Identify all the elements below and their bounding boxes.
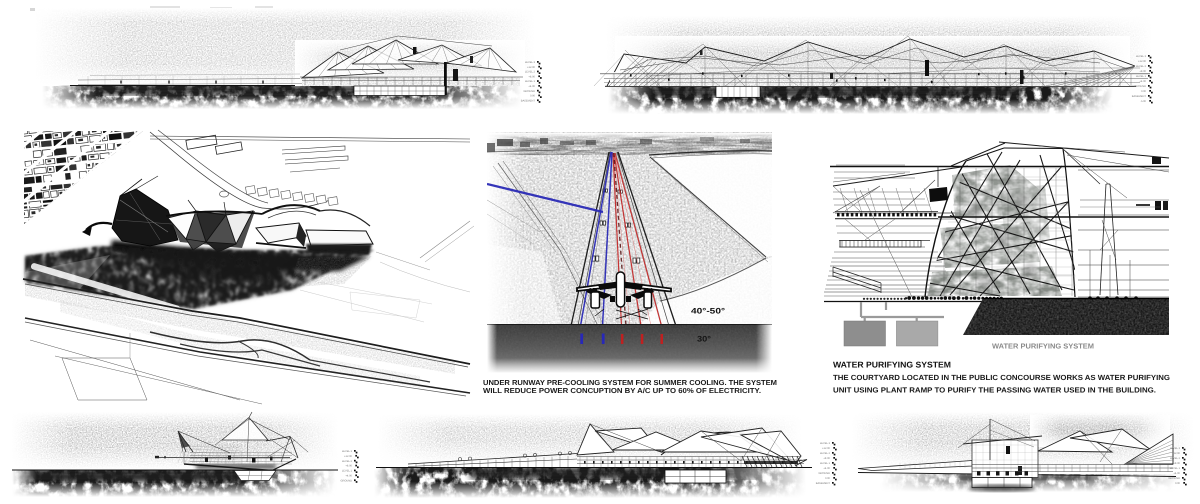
svg-text:THE COURTYARD LOCATED IN THE P: THE COURTYARD LOCATED IN THE PUBLIC CONC…	[833, 373, 1170, 382]
svg-text:UNIT USING PLANT RAMP TO PURI: UNIT USING PLANT RAMP TO PURIFY THE PASS…	[833, 386, 1156, 395]
svg-text:+4.00: +4.00	[528, 85, 535, 88]
svg-text:BASEMENT: BASEMENT	[1132, 95, 1147, 98]
svg-text:LEVEL 1: LEVEL 1	[1170, 467, 1181, 470]
svg-text:LEVEL 1: LEVEL 1	[820, 462, 831, 465]
svg-text:+12.00: +12.00	[527, 66, 536, 69]
svg-text:BASEMENT: BASEMENT	[816, 482, 831, 485]
svg-text:LEVEL 2: LEVEL 2	[342, 460, 353, 463]
svg-text:LEVEL 3: LEVEL 3	[820, 442, 831, 445]
svg-text:40°-50°: 40°-50°	[691, 307, 725, 316]
svg-text:LEVEL 2: LEVEL 2	[820, 452, 831, 455]
svg-text:30°: 30°	[697, 335, 711, 344]
svg-text:+4.00: +4.00	[345, 475, 352, 478]
svg-text:LEVEL 1: LEVEL 1	[1136, 75, 1147, 78]
svg-text:+4.00: +4.00	[1139, 80, 1146, 83]
svg-text:+12.00: +12.00	[1172, 452, 1181, 455]
svg-text:GROUND: GROUND	[340, 479, 352, 482]
svg-text:LEVEL 3: LEVEL 3	[342, 450, 353, 453]
svg-text:LEVEL 3: LEVEL 3	[1170, 447, 1181, 450]
svg-text:BASEMENT: BASEMENT	[521, 99, 536, 102]
svg-text:WILL REDUCE POWER CONCUPTION B: WILL REDUCE POWER CONCUPTION BY A/C UP T…	[483, 386, 761, 395]
svg-text:+12.00: +12.00	[822, 447, 831, 450]
svg-text:LEVEL 2: LEVEL 2	[1136, 65, 1147, 68]
svg-text:LEVEL 3: LEVEL 3	[1136, 55, 1147, 58]
svg-text:+4.00: +4.00	[1173, 472, 1180, 475]
svg-text:LEVEL 1: LEVEL 1	[525, 80, 536, 83]
svg-text:LEVEL 3: LEVEL 3	[525, 61, 536, 64]
svg-text:WATER PURIFYING SYSTEM: WATER PURIFYING SYSTEM	[833, 359, 951, 369]
svg-text:LEVEL 1: LEVEL 1	[342, 470, 353, 473]
svg-text:+8.00: +8.00	[1139, 70, 1146, 73]
svg-text:GROUND: GROUND	[1134, 85, 1146, 88]
svg-text:+8.00: +8.00	[345, 465, 352, 468]
svg-text:0.00: 0.00	[530, 95, 536, 98]
svg-text:GROUND: GROUND	[1168, 477, 1180, 480]
svg-text:0.00: 0.00	[1175, 482, 1181, 485]
svg-text:+4.00: +4.00	[823, 467, 830, 470]
svg-text:+8.00: +8.00	[528, 75, 535, 78]
svg-text:+8.00: +8.00	[1173, 462, 1180, 465]
svg-text:LEVEL 2: LEVEL 2	[525, 71, 536, 74]
svg-text:+12.00: +12.00	[1138, 60, 1147, 63]
svg-text:GROUND: GROUND	[818, 472, 830, 475]
svg-text:0.00: 0.00	[1141, 90, 1147, 93]
svg-text:GROUND: GROUND	[523, 90, 535, 93]
svg-text:LEVEL 2: LEVEL 2	[1170, 457, 1181, 460]
svg-text:0.00: 0.00	[825, 477, 831, 480]
svg-text:+12.00: +12.00	[344, 455, 353, 458]
svg-text:WATER PURIFYING SYSTEM: WATER PURIFYING SYSTEM	[992, 341, 1094, 350]
svg-text:-6.00: -6.00	[1140, 100, 1146, 103]
svg-text:+8.00: +8.00	[823, 457, 830, 460]
